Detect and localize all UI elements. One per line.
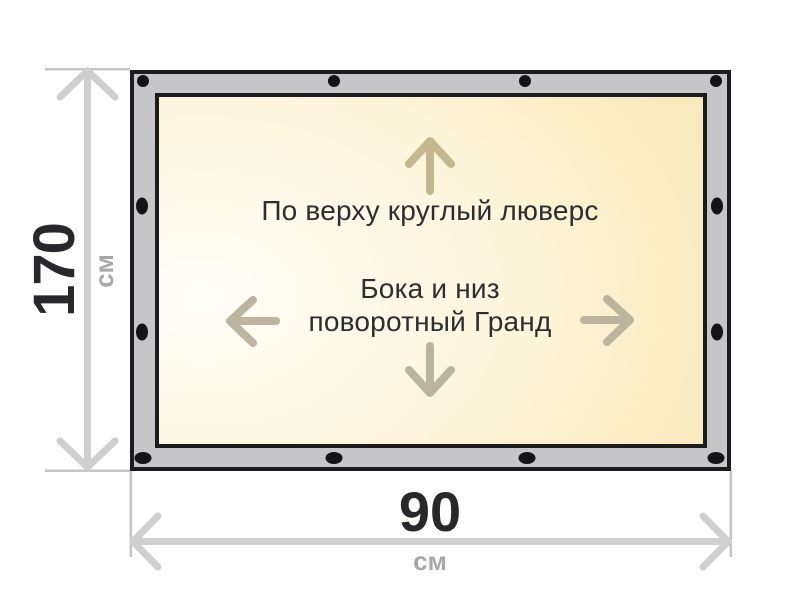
grommet-dot xyxy=(136,324,148,341)
top-grommet-note: По верху круглый люверс xyxy=(180,197,680,225)
grommet-dot xyxy=(135,452,152,464)
height-unit: см xyxy=(91,241,117,301)
banner-canvas xyxy=(155,93,707,448)
sides-grommet-note-line1: Бока и низ xyxy=(180,272,680,305)
grommet-dot xyxy=(137,75,149,87)
grommet-dot xyxy=(710,75,722,87)
grommet-dot xyxy=(711,198,723,215)
sides-grommet-note-line2: поворотный Гранд xyxy=(180,305,680,338)
grommet-dot xyxy=(519,75,531,87)
width-value: 90 xyxy=(330,484,530,540)
grommet-dot xyxy=(708,452,725,464)
grommet-dot xyxy=(326,452,343,464)
banner-size-diagram: По верху круглый люверс Бока и низ повор… xyxy=(0,0,800,600)
sides-grommet-note: Бока и низ поворотный Гранд xyxy=(180,272,680,338)
width-unit: см xyxy=(330,548,530,574)
grommet-dot xyxy=(519,452,536,464)
grommet-dot xyxy=(711,324,723,341)
height-value: 170 xyxy=(25,200,85,340)
grommet-dot xyxy=(328,75,340,87)
grommet-dot xyxy=(136,198,148,215)
